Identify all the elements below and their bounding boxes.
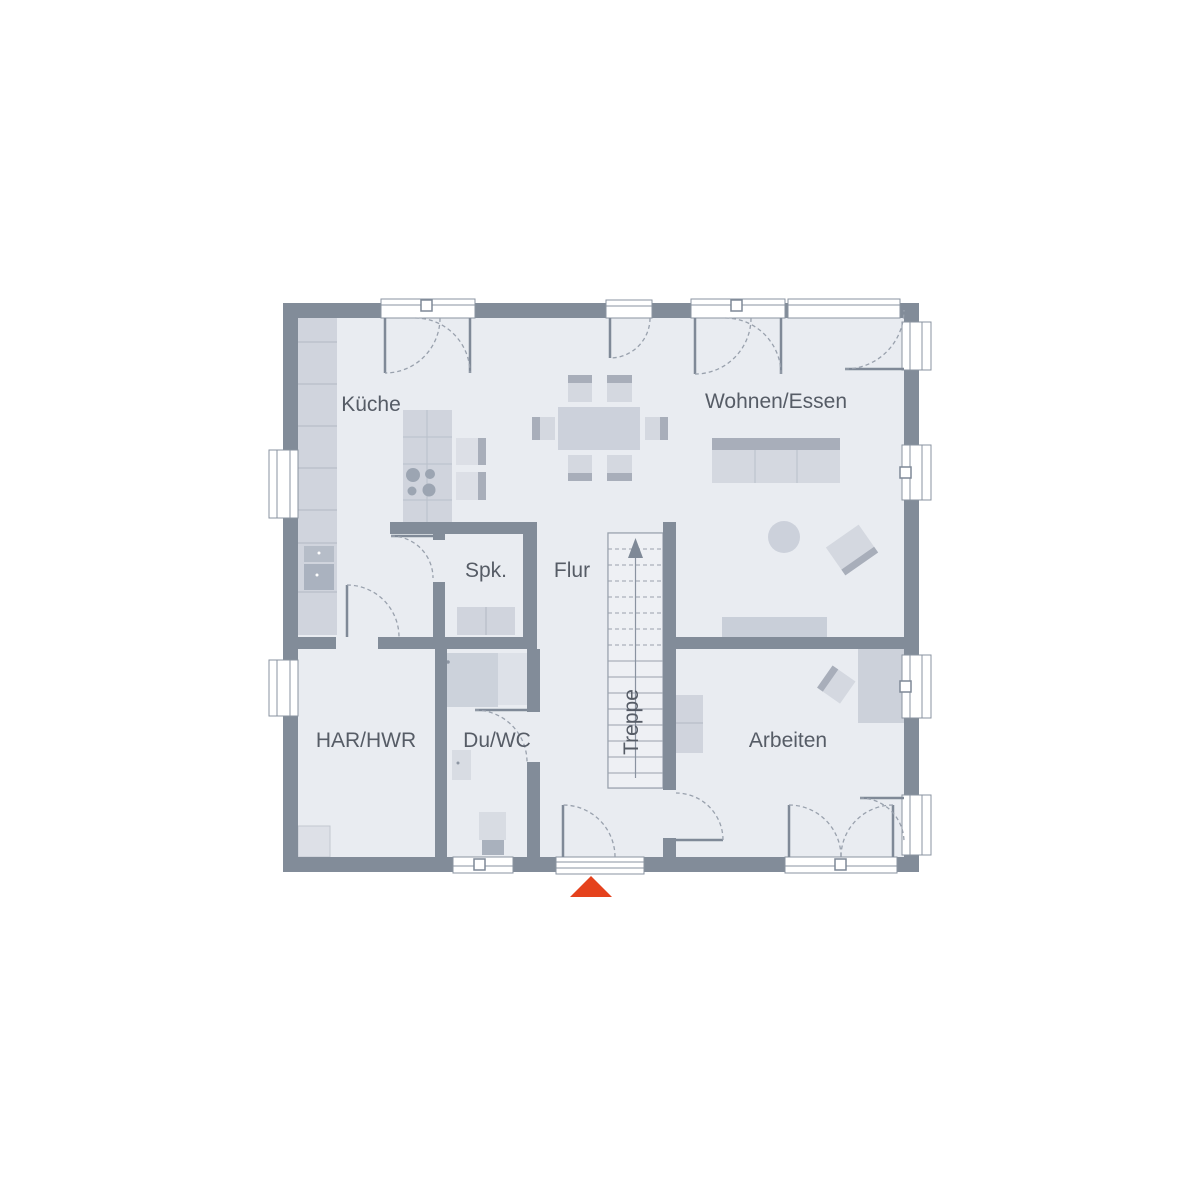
office-cabinet [676,695,703,753]
room-label-har-hwr: HAR/HWR [316,729,416,752]
toilet [479,812,506,855]
window-handle-icon [900,467,911,478]
sofa [712,438,840,483]
coffee-table [768,521,800,553]
shower [440,653,528,707]
room-label-kueche: Küche [341,393,401,416]
pantry-cabinet [457,607,515,635]
desk [858,647,904,723]
room-label-flur: Flur [554,559,590,582]
kitchen-counter [298,318,337,635]
terrace-door-wohnen [691,299,785,318]
window-arbeiten-right [900,655,931,718]
washbasin [452,750,471,780]
entrance-door [556,857,644,874]
terrace-door-kitchen [381,299,475,318]
window-handle-icon [900,681,911,692]
room-label-arbeiten: Arbeiten [749,729,827,752]
kitchen-appliance [304,564,334,590]
door-wohnen-top [606,300,652,318]
entrance-arrow-icon [570,876,612,897]
window-wohnen-corner [902,322,931,370]
wall-left [283,303,298,872]
window-arbeiten-corner [902,795,931,855]
room-label-wohnen-essen: Wohnen/Essen [705,390,847,413]
floor-plan-canvas: Küche Wohnen/Essen Spk. Flur Treppe HAR/… [0,0,1200,1200]
floor-plan: Küche Wohnen/Essen Spk. Flur Treppe HAR/… [0,0,1200,1200]
window-duwc-bottom [453,857,513,873]
room-label-du-wc: Du/WC [463,729,531,752]
window-wohnen-right [900,445,931,500]
lintel-top-right [788,299,900,318]
terrace-door-arbeiten [785,857,897,873]
window-har-left [269,660,298,716]
sideboard [722,617,827,637]
room-label-spk: Spk. [465,559,507,582]
washing-machine [298,826,330,857]
dining-table [558,407,640,450]
wall-right [904,303,919,872]
window-kitchen-left [269,450,298,518]
kitchen-island [403,410,452,523]
room-label-treppe: Treppe [620,689,643,755]
